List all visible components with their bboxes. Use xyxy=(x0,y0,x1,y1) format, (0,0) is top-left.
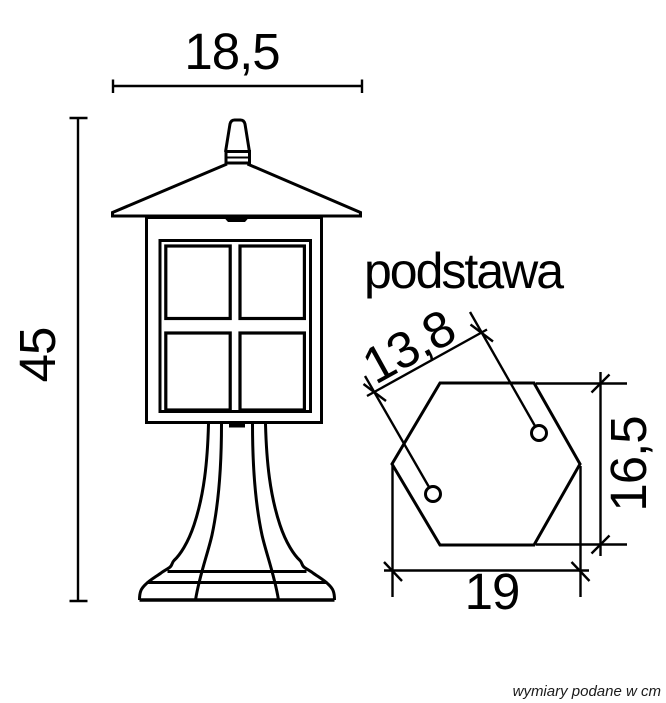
pedestal-outer-left xyxy=(140,424,209,600)
lantern-height-dimension xyxy=(70,118,88,601)
technical-drawing-page: 18,5 45 podstawa xyxy=(0,0,666,703)
window-pane-bottom-right xyxy=(240,333,304,410)
drawing-canvas: 18,5 45 podstawa xyxy=(0,0,666,703)
base-width-label: 19 xyxy=(465,563,520,620)
lantern-height-label: 45 xyxy=(9,328,66,383)
window-pane-top-left xyxy=(166,246,230,319)
dimension-slash-tick xyxy=(471,325,494,342)
window-pane-bottom-left xyxy=(166,333,230,410)
units-footnote: wymiary podane w cm xyxy=(513,683,661,700)
mounting-hole xyxy=(426,487,441,502)
base-view-title: podstawa xyxy=(364,243,564,299)
window-panes xyxy=(166,246,305,410)
finial-outline xyxy=(226,120,250,152)
neck-tab xyxy=(229,424,245,428)
window-pane-top-right xyxy=(240,246,304,319)
lantern-width-label: 18,5 xyxy=(184,23,279,80)
mounting-hole xyxy=(532,426,547,441)
extension-line xyxy=(470,312,539,433)
base-hexagon-outline xyxy=(392,383,580,545)
roof-outline xyxy=(113,164,361,216)
window-frame xyxy=(160,241,311,412)
lantern-front-view xyxy=(113,120,361,600)
lantern-width-dimension xyxy=(113,80,362,94)
base-depth-label: 16,5 xyxy=(600,416,657,511)
base-hole-spacing-label: 13,8 xyxy=(353,299,464,395)
pedestal xyxy=(140,424,335,600)
pedestal-outer-right xyxy=(266,424,335,600)
